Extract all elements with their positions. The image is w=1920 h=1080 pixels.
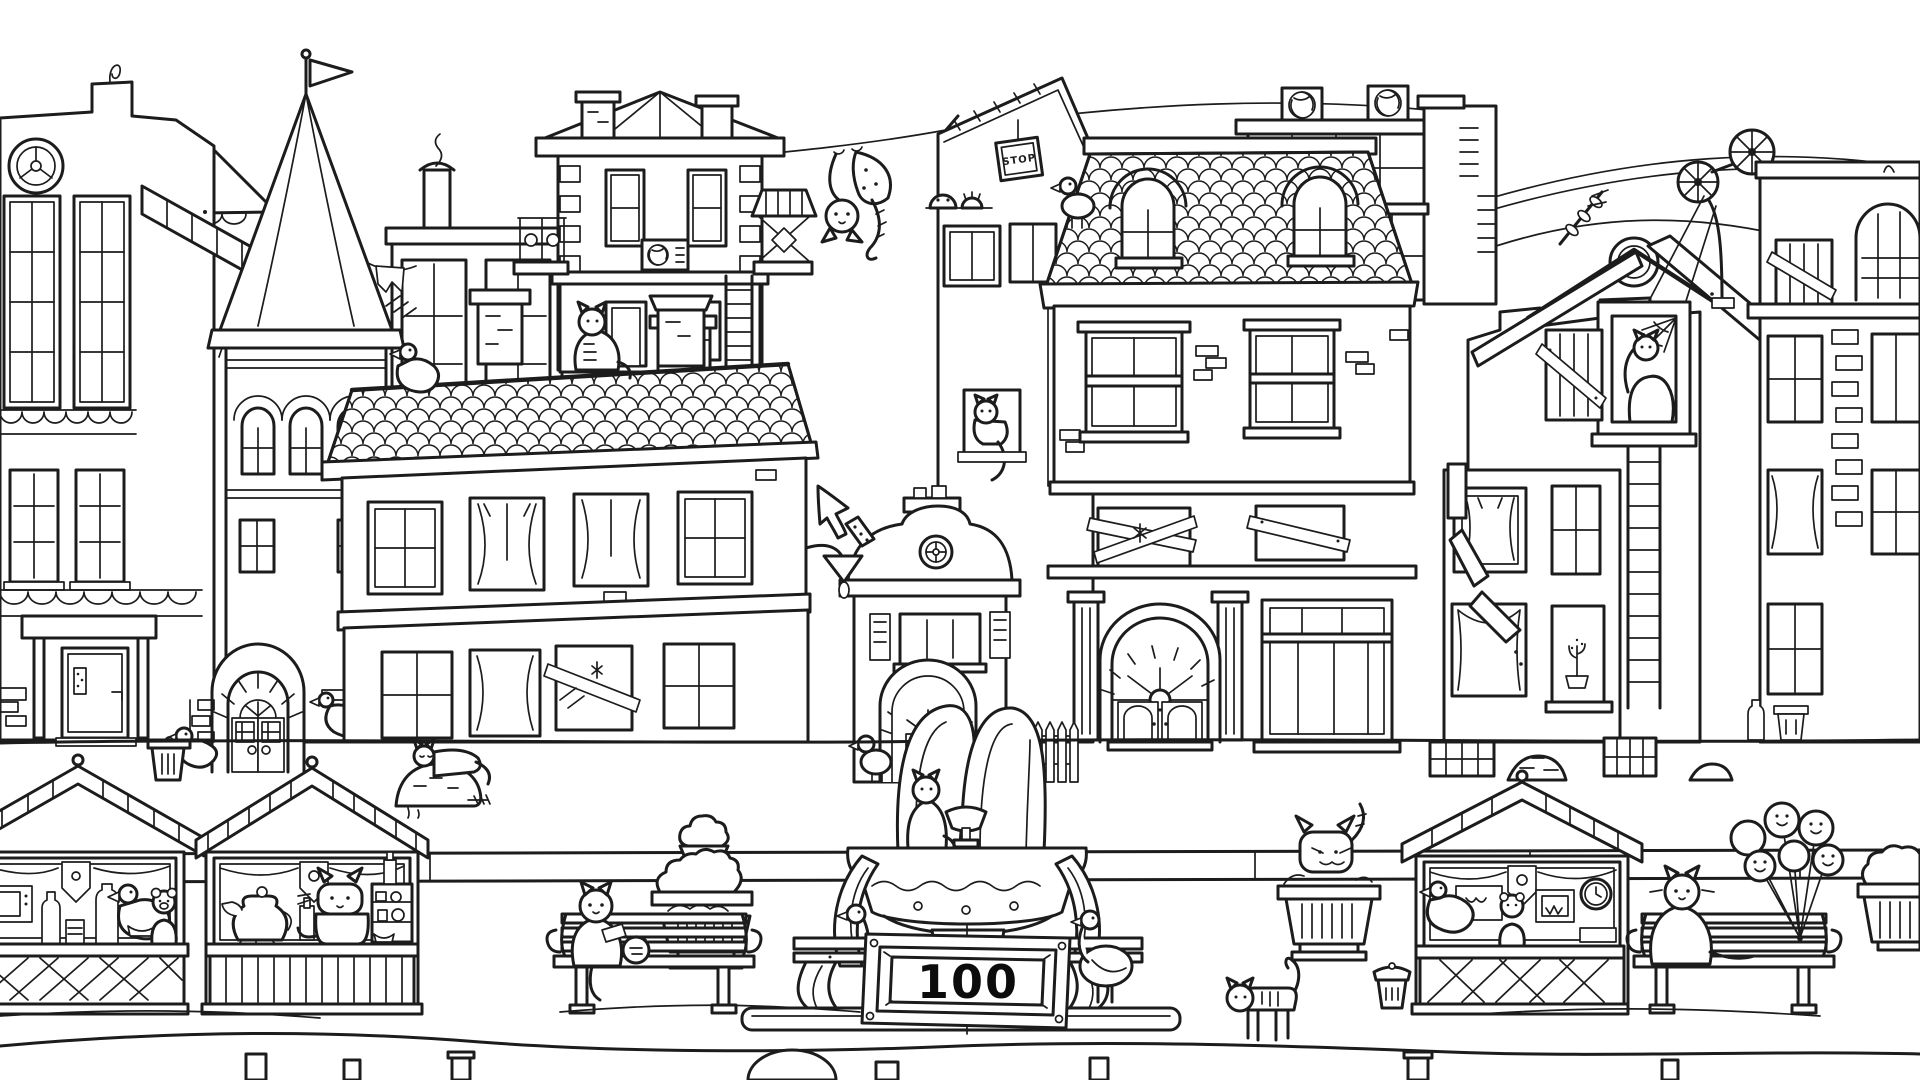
chimney (470, 290, 530, 364)
wall-clock (1581, 879, 1611, 909)
chimney (696, 96, 738, 138)
window (688, 170, 726, 246)
market-stall-middle (196, 757, 428, 1014)
ruined-window-with-cat (1592, 302, 1696, 446)
main-left-house (322, 290, 862, 742)
boarded-window (1087, 508, 1197, 566)
window (606, 170, 644, 246)
curtain-window (470, 650, 540, 736)
window (1768, 604, 1822, 694)
topiary-planter-middle (1278, 804, 1380, 960)
market-stall-left (0, 755, 204, 1014)
trash-can (148, 737, 190, 780)
plain-door (56, 648, 136, 746)
curtain-window (470, 498, 544, 590)
game-cursor-arrow (818, 486, 874, 546)
window (382, 652, 452, 738)
bay-window (74, 196, 130, 408)
arched-doorway (1068, 592, 1248, 750)
right-wing (1748, 162, 1920, 742)
mansard-house (1040, 138, 1418, 752)
cats-remaining-counter: 100 (917, 955, 1019, 1009)
window (240, 520, 274, 572)
trash-can-right (1374, 963, 1410, 1008)
cat-on-garbage-pile[interactable] (396, 740, 490, 818)
arched-side-window (990, 612, 1010, 658)
boarded-window (1247, 506, 1350, 560)
next-row-rooftop-peeks (246, 1050, 1678, 1080)
framed-picture (1536, 890, 1574, 922)
topiary-planter-right (1858, 846, 1920, 950)
roof-vent-fan (1368, 86, 1408, 120)
stop-poster: STOP (996, 137, 1043, 180)
window (944, 226, 1000, 286)
score-sign: 100 (862, 926, 1070, 1034)
window (1768, 470, 1822, 554)
cat-hanging-from-clothesline[interactable] (822, 147, 890, 259)
cat-walking-by-trash-can[interactable] (1227, 958, 1299, 1040)
boarded-window (544, 646, 640, 730)
bay-window (4, 196, 60, 408)
curtain-window (574, 494, 648, 586)
ruined-house (1444, 130, 1920, 742)
window (1768, 336, 1822, 422)
window (4, 470, 64, 590)
storefront-window (1254, 600, 1400, 752)
porthole-window (9, 139, 63, 193)
window (678, 492, 752, 584)
rosette-window (920, 536, 952, 568)
bottle-on-ledge (1748, 700, 1764, 740)
arched-side-window (870, 614, 890, 660)
window (70, 470, 130, 590)
window (1872, 470, 1920, 554)
boarded-window (1536, 330, 1606, 420)
flag (310, 60, 352, 86)
cat-cape (853, 152, 890, 204)
window (1872, 334, 1920, 422)
ac-unit (642, 240, 688, 270)
sash-window (1078, 322, 1190, 442)
chimney (576, 92, 620, 138)
roof-vent-fan (1282, 88, 1322, 122)
cactus-window (1546, 606, 1612, 712)
boarded-window (1767, 240, 1836, 308)
stall-roof (196, 768, 428, 858)
tv-antenna (1560, 190, 1608, 244)
chimney (650, 296, 712, 366)
window (368, 502, 442, 594)
market-stall-right (1402, 771, 1642, 1014)
scene-illustration: STOP (0, 0, 1920, 1080)
sash-window (1244, 320, 1340, 438)
game-scene: STOP (0, 0, 1920, 1080)
arched-window (1856, 204, 1920, 300)
window (1552, 486, 1600, 574)
park-bench-right (1627, 803, 1843, 1013)
window (664, 644, 734, 728)
